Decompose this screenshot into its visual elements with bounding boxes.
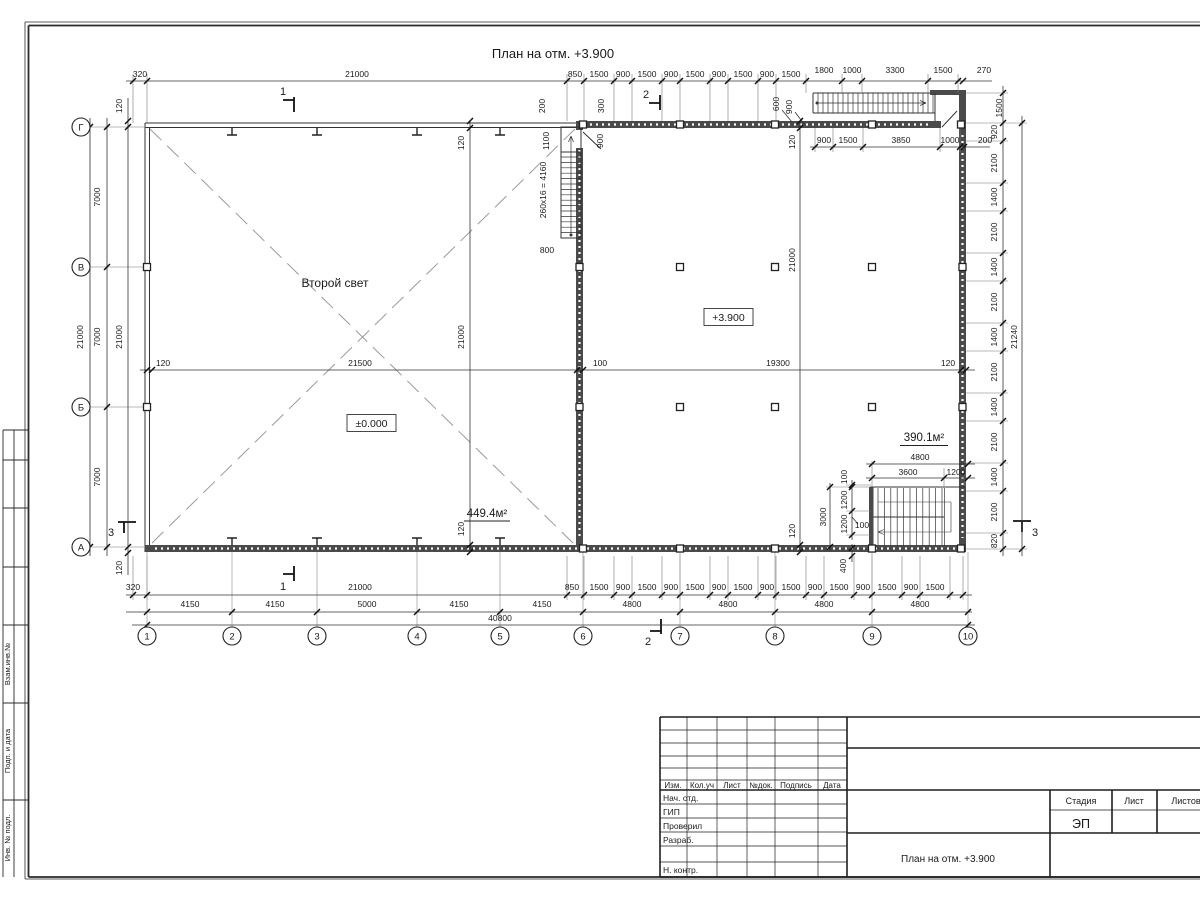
column-square: [959, 264, 966, 271]
section-label: 1: [280, 581, 286, 593]
door-opening-top: [941, 120, 958, 130]
axis-bubble-label: А: [78, 543, 85, 554]
dim-label: 320: [133, 69, 147, 79]
dim-label: 900: [784, 100, 794, 114]
dim-label: 4800: [815, 599, 834, 609]
axis-bubble-label: 4: [414, 632, 419, 643]
column-square: [677, 404, 684, 411]
dim-label: 7000: [92, 467, 102, 486]
column-square: [677, 545, 684, 552]
role-nach-otd: Нач. отд.: [663, 793, 698, 803]
dim-label: 3850: [892, 135, 911, 145]
dim-label: 100: [839, 470, 849, 484]
dim-label: 1500: [686, 582, 705, 592]
dim-label: 1500: [590, 582, 609, 592]
column-square: [869, 545, 876, 552]
dim-label: 1400: [989, 397, 999, 416]
dim-label: 21000: [345, 69, 369, 79]
dim-label: 900: [595, 134, 605, 148]
sheet-header: Лист: [1124, 796, 1144, 806]
section-label: 3: [1032, 527, 1038, 539]
role-proveril: Проверил: [663, 821, 702, 831]
side-stamp-label: Взам.инв.№: [3, 643, 12, 685]
dim-label: 21000: [787, 248, 797, 272]
dim-label: 5000: [358, 599, 377, 609]
dim-label: 820: [989, 534, 999, 548]
dim-label: 4800: [719, 599, 738, 609]
role-razrab: Разраб.: [663, 835, 694, 845]
dim-label: 900: [616, 582, 630, 592]
dim-label: 900: [616, 69, 630, 79]
stage-value: ЭП: [1072, 817, 1090, 831]
stage-header: Стадия: [1066, 796, 1097, 806]
axis-bubble-label: 9: [869, 632, 874, 643]
dim-label: 900: [904, 582, 918, 592]
column-square: [580, 545, 587, 552]
dim-label: 3600: [899, 467, 918, 477]
axis-bubble-label: В: [78, 263, 84, 274]
dim-label: 1500: [926, 582, 945, 592]
dim-label: 800: [540, 245, 554, 255]
column-square: [677, 264, 684, 271]
rev-header-ndok: №док.: [749, 781, 772, 790]
level-right-label: +3.900: [712, 312, 745, 324]
dim-label: 7000: [92, 327, 102, 346]
door-opening-partition: [575, 130, 585, 148]
axis-bubble-label: Г: [78, 123, 83, 134]
rev-header-podpis: Подпись: [780, 781, 812, 790]
dim-label: 4800: [623, 599, 642, 609]
dim-label: 120: [787, 135, 797, 149]
dim-label: 900: [760, 69, 774, 79]
column-square: [576, 264, 583, 271]
column-square: [869, 121, 876, 128]
axis-bubble-label: Б: [78, 403, 84, 414]
dim-label: 2100: [989, 292, 999, 311]
dim-label: 21000: [456, 325, 466, 349]
drawing-sheet: Взам.инв.№ Подп. и дата Инв. № подл. Изм…: [0, 0, 1200, 900]
side-stamp-label: Инв. № подл.: [3, 815, 12, 862]
dim-label: 1200: [839, 490, 849, 509]
column-square: [958, 121, 965, 128]
stair-arrow-origin: [816, 102, 819, 105]
column-square: [772, 404, 779, 411]
dim-label: 2100: [989, 222, 999, 241]
dim-label: 900: [712, 582, 726, 592]
plan-title: План на отм. +3.900: [492, 46, 614, 61]
level-left-label: ±0.000: [355, 418, 387, 430]
dim-label: 850: [565, 582, 579, 592]
rev-header-koluch: Кол.уч: [690, 781, 714, 790]
dim-label: 120: [114, 561, 124, 575]
dim-label: 1500: [638, 582, 657, 592]
column-square: [677, 121, 684, 128]
column-square: [772, 545, 779, 552]
dim-label: 4150: [533, 599, 552, 609]
room-label: Второй свет: [301, 276, 369, 290]
dim-label: 1400: [989, 257, 999, 276]
dim-label: 1500: [638, 69, 657, 79]
dim-label: 1500: [830, 582, 849, 592]
dim-label: 1400: [989, 327, 999, 346]
dim-label: 900: [664, 69, 678, 79]
axis-bubble-label: 5: [497, 632, 502, 643]
dim-label: 200: [537, 99, 547, 113]
role-gip: ГИП: [663, 807, 680, 817]
dim-label: 900: [817, 135, 831, 145]
section-label: 2: [643, 89, 649, 101]
dim-label: 19300: [766, 358, 790, 368]
dim-label: 2100: [989, 362, 999, 381]
column-square: [958, 545, 965, 552]
dim-label: 4150: [266, 599, 285, 609]
dim-label: 3000: [818, 507, 828, 526]
dim-label: 1500: [686, 69, 705, 79]
dim-label: 100: [855, 520, 869, 530]
dim-label: 900: [712, 69, 726, 79]
section-label: 3: [108, 527, 114, 539]
dim-label: 1400: [989, 187, 999, 206]
bottom-wall: [145, 545, 966, 552]
axis-bubble-label: 6: [580, 632, 585, 643]
dim-label: 120: [941, 358, 955, 368]
dim-label: 1500: [734, 69, 753, 79]
dim-label: 100: [593, 358, 607, 368]
dim-label: 300: [596, 99, 606, 113]
axis-bubble-label: 8: [772, 632, 777, 643]
column-square: [772, 121, 779, 128]
dim-label: 120: [114, 99, 124, 113]
axis-bubble-label: 7: [677, 632, 682, 643]
dim-label: 1500: [934, 65, 953, 75]
dim-label: 1800: [815, 65, 834, 75]
dim-label: 900: [664, 582, 678, 592]
dim-label: 1500: [878, 582, 897, 592]
dim-label: 2100: [989, 153, 999, 172]
doc-title: План на отм. +3.900: [901, 854, 995, 865]
dim-label: 1500: [782, 69, 801, 79]
role-n-kontr: Н. контр.: [663, 865, 698, 875]
axis-bubble-label: 10: [963, 632, 974, 643]
column-square: [144, 264, 151, 271]
dim-label: 900: [808, 582, 822, 592]
dim-label: 120: [456, 522, 466, 536]
dim-label: 900: [760, 582, 774, 592]
rev-header-list: Лист: [723, 781, 741, 790]
dim-label: 1200: [947, 467, 966, 477]
dim-label: 920: [989, 125, 999, 139]
dim-label: 4150: [181, 599, 200, 609]
section-label: 2: [645, 636, 651, 648]
axis-bubble-label: 1: [144, 632, 149, 643]
column-square: [869, 404, 876, 411]
column-square: [772, 264, 779, 271]
column-square: [576, 404, 583, 411]
column-square: [869, 264, 876, 271]
side-stamp-label: Подп. и дата: [3, 728, 12, 773]
axis-bubble-label: 2: [229, 632, 234, 643]
dim-label: 270: [977, 65, 991, 75]
axis-bubble-label: 3: [314, 632, 319, 643]
stair-side-wall: [869, 487, 874, 547]
dim-label: 120: [156, 358, 170, 368]
dim-label: 21240: [1009, 325, 1019, 349]
rev-header-izm: Изм.: [664, 781, 681, 790]
dim-label: 40800: [488, 613, 512, 623]
dim-label: 850: [568, 69, 582, 79]
dim-label: 1000: [941, 135, 960, 145]
dim-label: 3300: [886, 65, 905, 75]
sheets-header: Листов: [1171, 796, 1200, 806]
dim-label: 320: [126, 582, 140, 592]
dim-label: 120: [787, 524, 797, 538]
dim-label: 900: [856, 582, 870, 592]
area-left-label: 449.4м²: [467, 508, 508, 520]
dim-label: 1100: [541, 132, 551, 151]
dim-label: 21000: [114, 325, 124, 349]
dim-label: 600: [771, 97, 781, 111]
column-square: [580, 121, 587, 128]
stair-arrow-origin: [570, 234, 573, 237]
dim-label: 21500: [348, 358, 372, 368]
dim-label: 21000: [348, 582, 372, 592]
area-right-label: 390.1м²: [904, 432, 945, 444]
dim-label: 1200: [839, 514, 849, 533]
section-label: 1: [280, 86, 286, 98]
dim-label: 1400: [989, 467, 999, 486]
dim-label: 400: [838, 559, 848, 573]
dim-label: 1500: [590, 69, 609, 79]
column-square: [959, 404, 966, 411]
dim-label: 4150: [450, 599, 469, 609]
dim-label: 21000: [75, 325, 85, 349]
dim-label: 1500: [782, 582, 801, 592]
dim-label: 2100: [989, 432, 999, 451]
dim-label: 2100: [989, 502, 999, 521]
dim-label: 1500: [839, 135, 858, 145]
dim-label: 1000: [843, 65, 862, 75]
stair-note-label: 260x16 = 4160: [538, 161, 548, 218]
dim-label: 120: [456, 136, 466, 150]
rev-header-data: Дата: [823, 781, 841, 790]
dim-label: 4800: [911, 599, 930, 609]
dim-label: 4800: [911, 452, 930, 462]
column-square: [144, 404, 151, 411]
dim-label: 7000: [92, 187, 102, 206]
dim-label: 1500: [994, 98, 1004, 117]
dim-label: 1500: [734, 582, 753, 592]
